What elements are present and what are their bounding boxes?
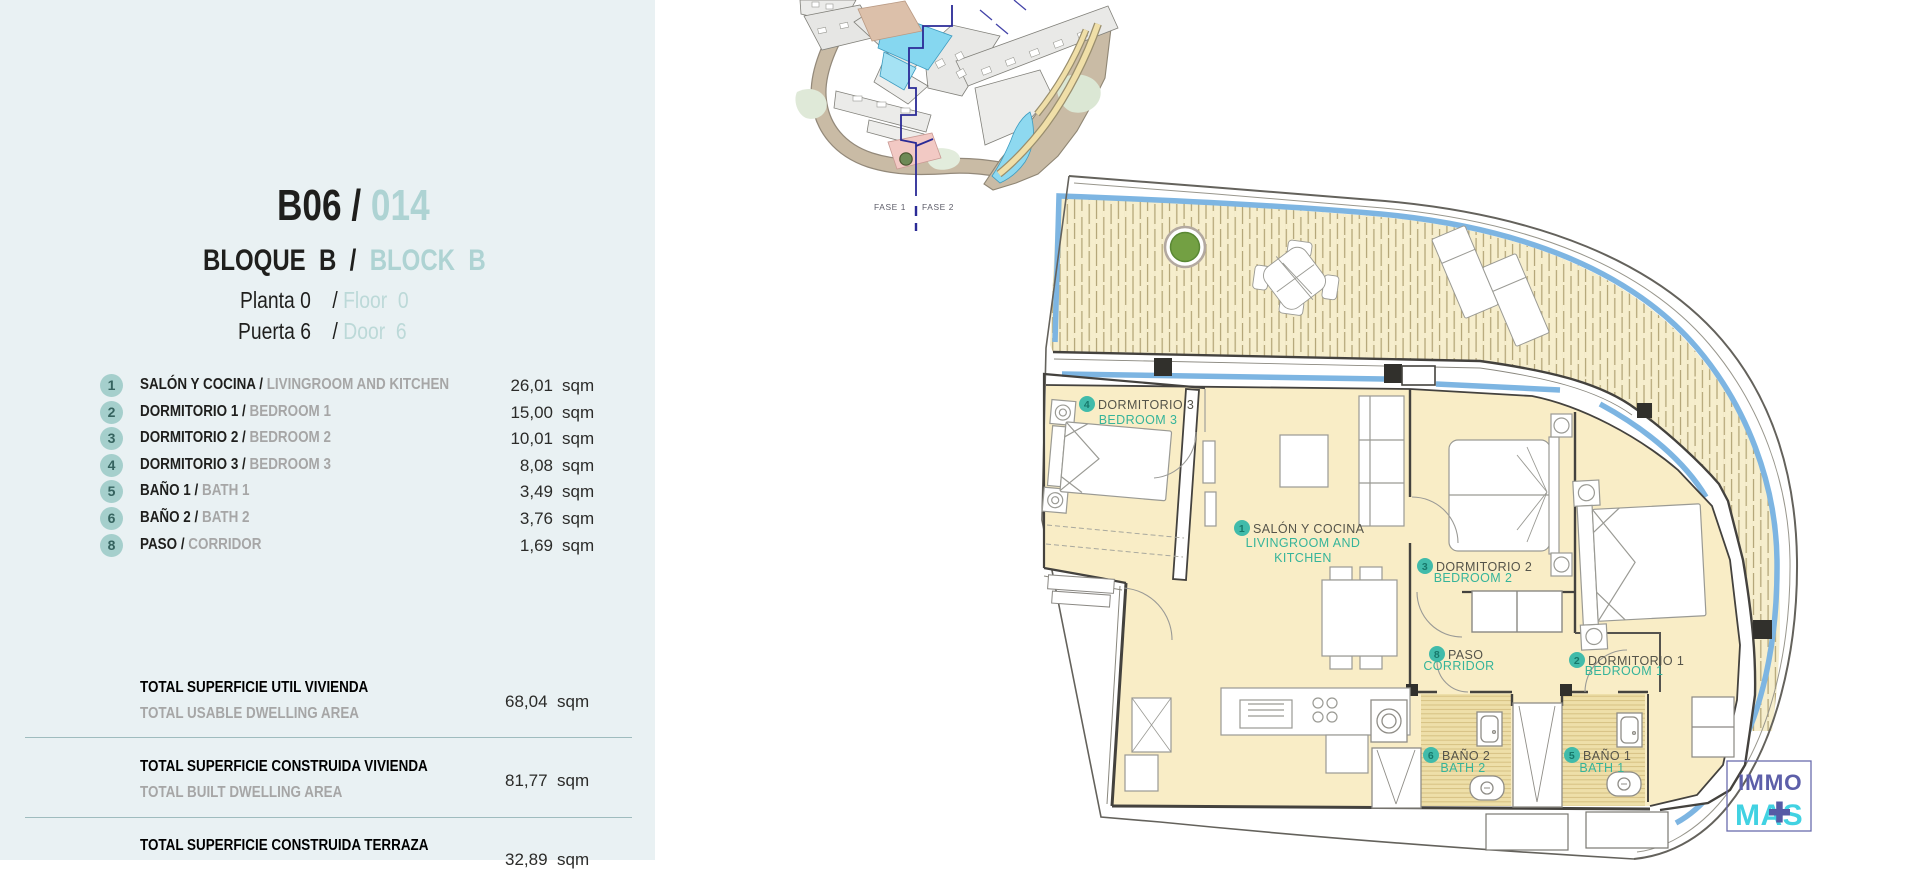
svg-text:BATH 1: BATH 1 — [1579, 761, 1624, 775]
svg-text:4: 4 — [1084, 399, 1090, 411]
svg-text:FASE 1: FASE 1 — [874, 202, 906, 212]
svg-text:2: 2 — [1574, 655, 1580, 667]
svg-text:3: 3 — [1422, 561, 1428, 573]
svg-text:FASE 2: FASE 2 — [922, 202, 954, 212]
svg-text:SALÓN Y COCINA: SALÓN Y COCINA — [1253, 521, 1365, 536]
svg-text:5: 5 — [1569, 750, 1575, 762]
svg-text:CORRIDOR: CORRIDOR — [1423, 659, 1494, 673]
svg-text:BEDROOM 2: BEDROOM 2 — [1434, 571, 1513, 585]
svg-text:BEDROOM 3: BEDROOM 3 — [1099, 413, 1178, 427]
svg-text:BATH 2: BATH 2 — [1440, 761, 1485, 775]
svg-text:DORMITORIO 3: DORMITORIO 3 — [1098, 398, 1194, 412]
svg-text:BEDROOM 1: BEDROOM 1 — [1585, 664, 1664, 678]
svg-text:LIVINGROOM AND: LIVINGROOM AND — [1246, 536, 1361, 550]
svg-text:1: 1 — [1239, 523, 1245, 535]
svg-text:IMMO: IMMO — [1738, 770, 1802, 795]
svg-text:6: 6 — [1428, 750, 1434, 762]
svg-text:KITCHEN: KITCHEN — [1274, 551, 1332, 565]
